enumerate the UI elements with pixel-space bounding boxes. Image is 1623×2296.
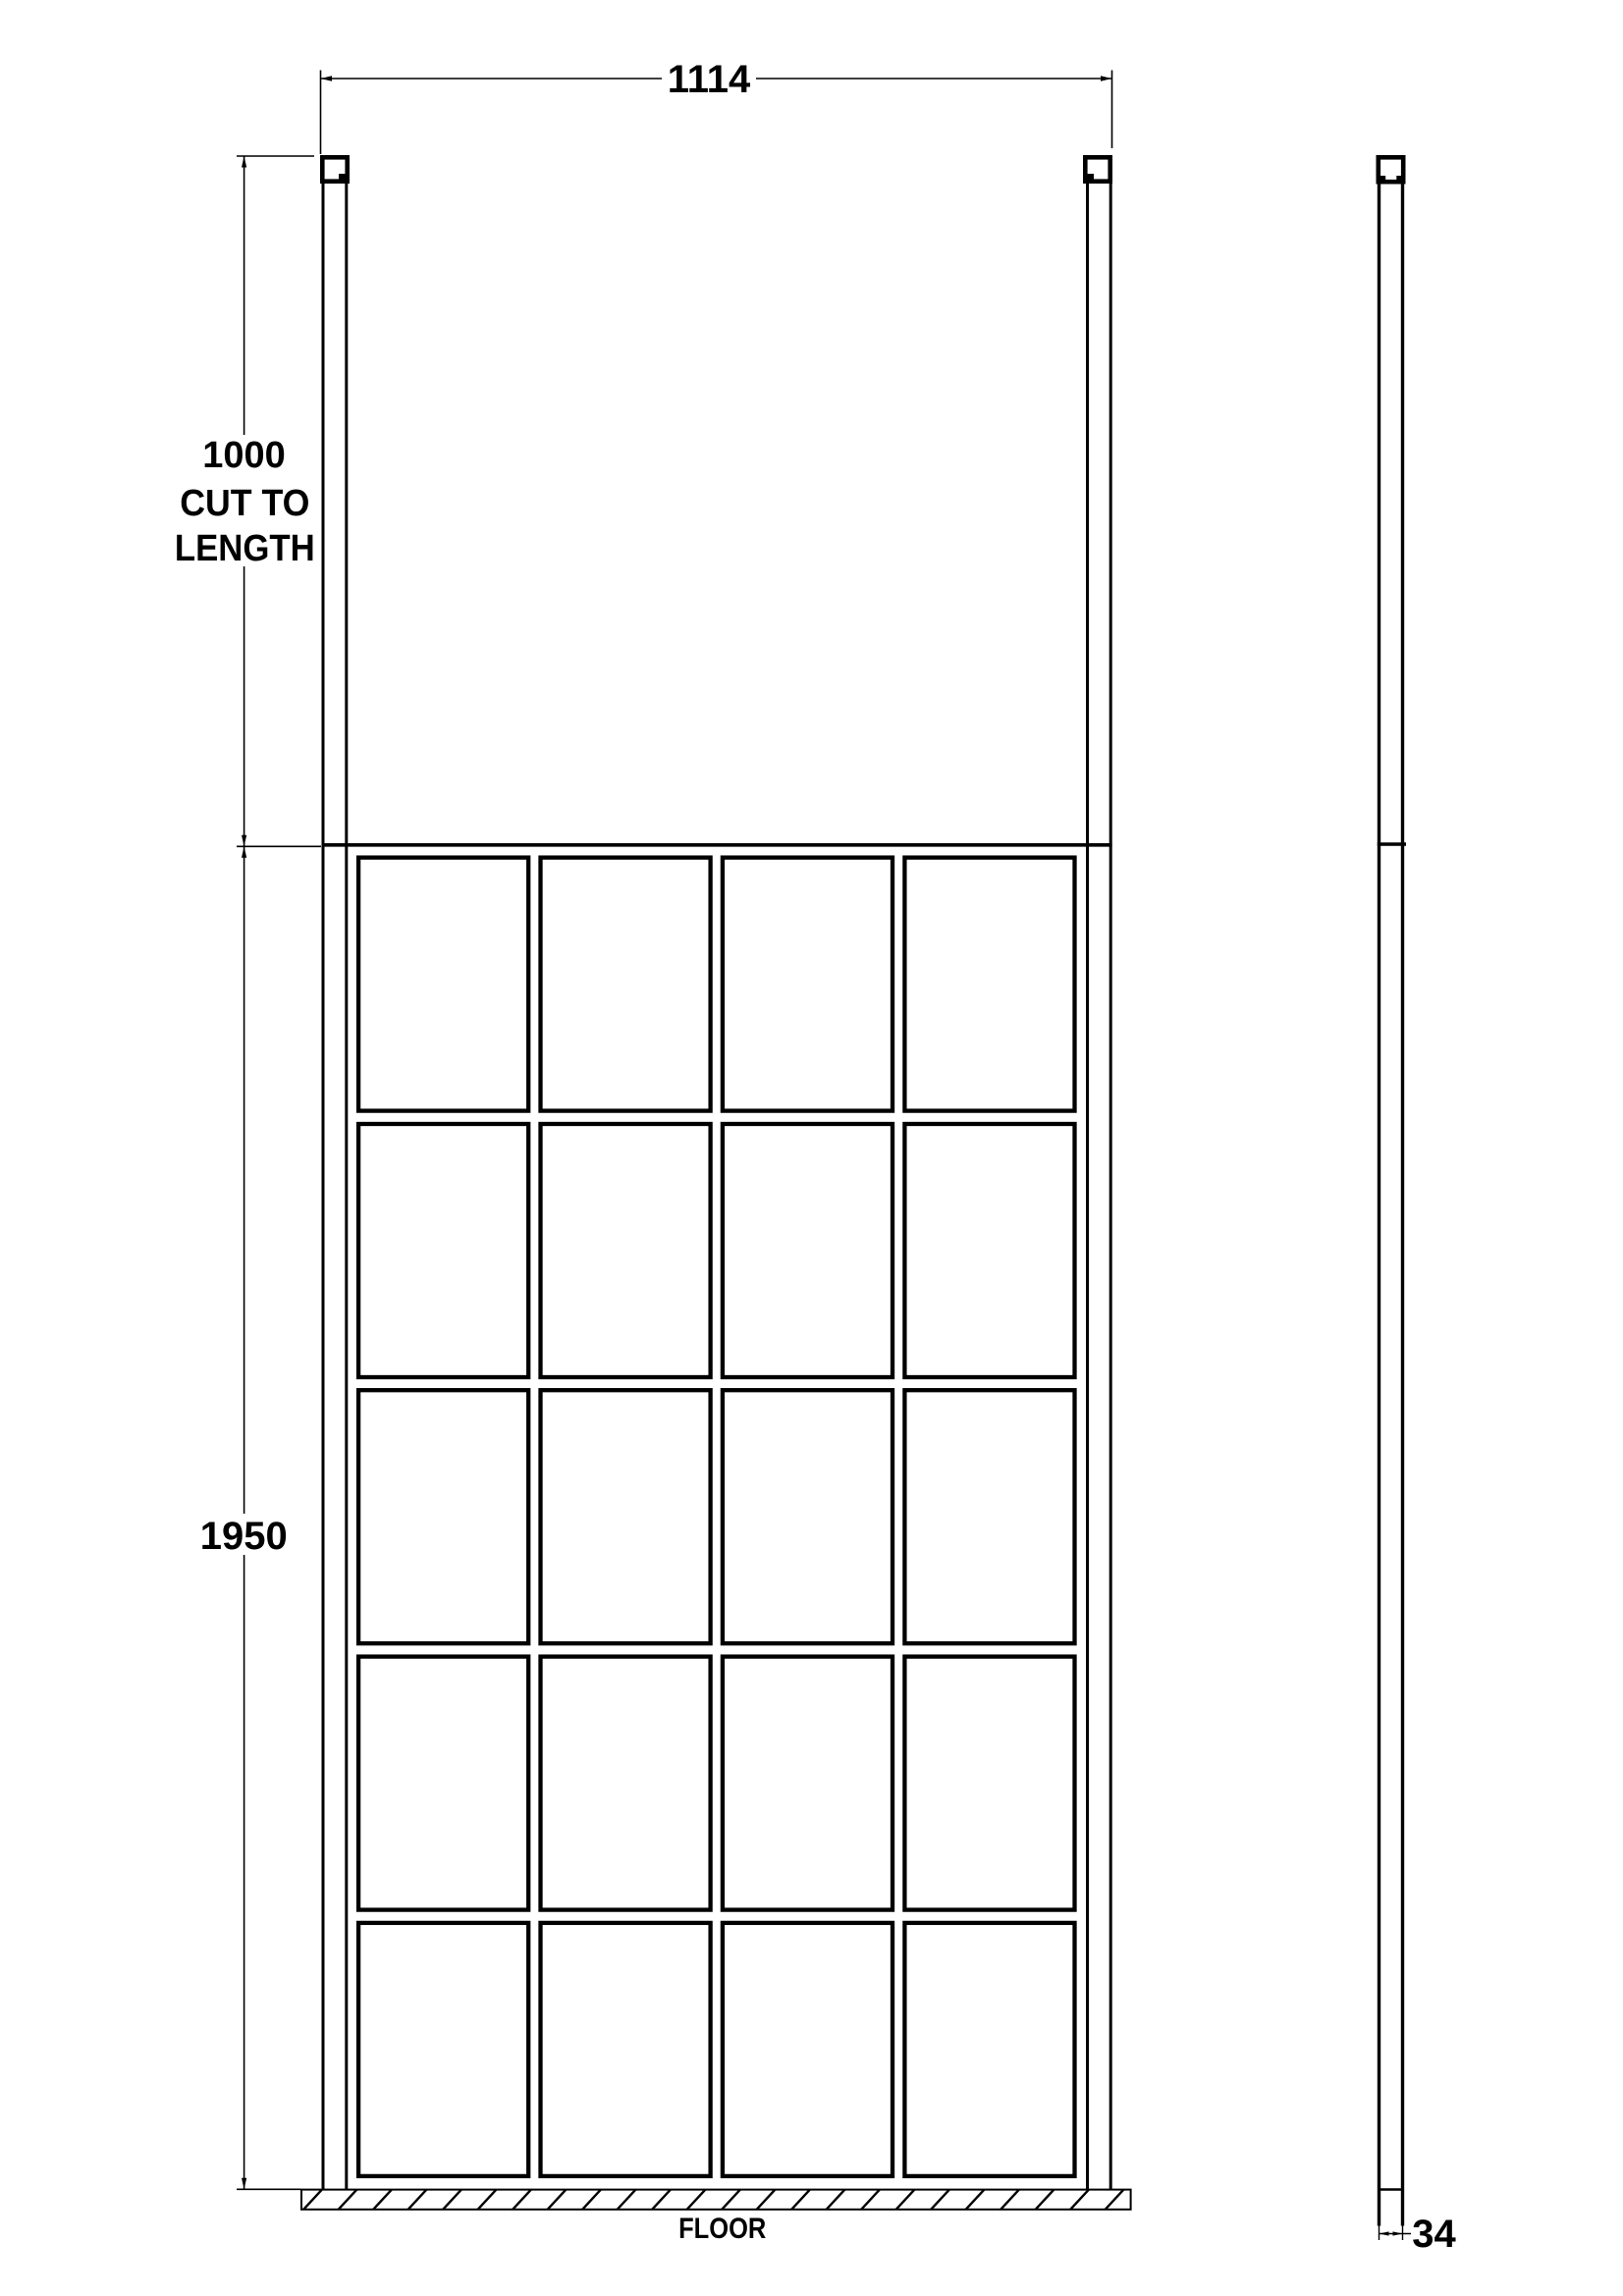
svg-text:1000: 1000 xyxy=(202,435,286,476)
svg-text:1950: 1950 xyxy=(200,1515,288,1558)
svg-text:34: 34 xyxy=(1412,2213,1456,2256)
svg-text:CUT TO: CUT TO xyxy=(180,482,309,523)
svg-text:1114: 1114 xyxy=(668,58,751,101)
svg-text:LENGTH: LENGTH xyxy=(175,527,315,569)
svg-text:FLOOR: FLOOR xyxy=(678,2212,766,2244)
